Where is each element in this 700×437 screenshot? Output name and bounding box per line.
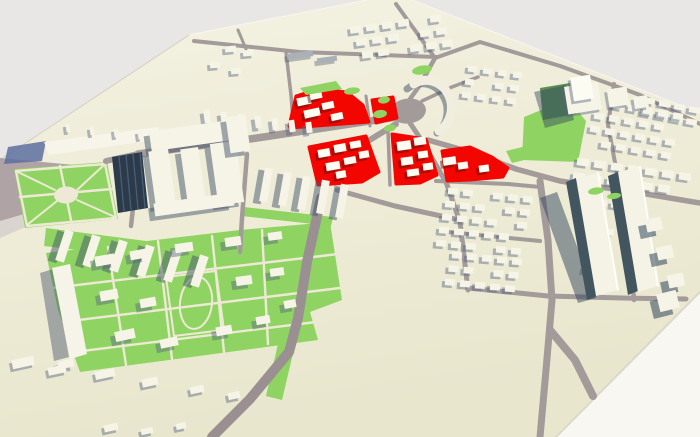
city-model-render — [0, 0, 700, 437]
park-tower-top — [568, 75, 594, 105]
screenshot-root — [0, 0, 700, 437]
road-zone2-zone3-gap — [388, 130, 390, 185]
palace-complex — [143, 115, 251, 222]
